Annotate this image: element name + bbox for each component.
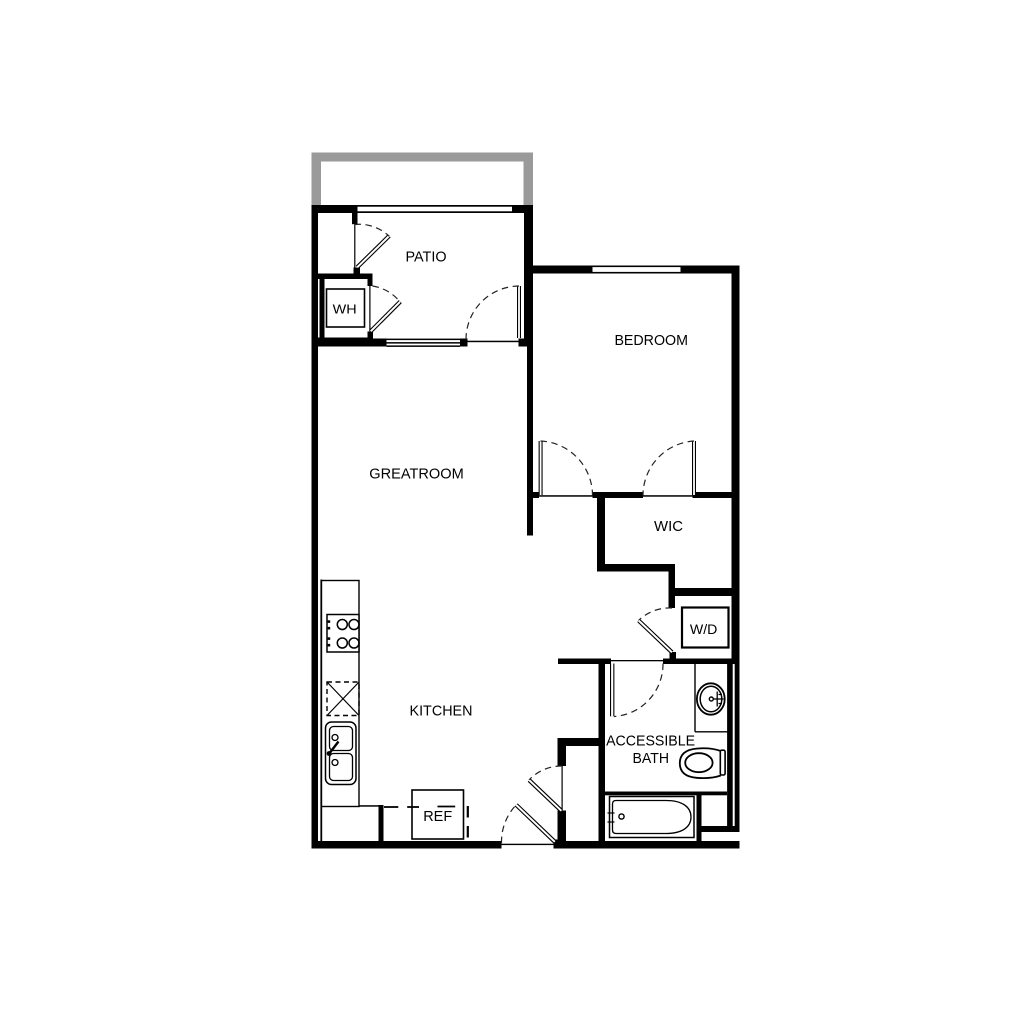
svg-text:KITCHEN: KITCHEN (410, 703, 473, 720)
svg-text:ACCESSIBLE: ACCESSIBLE (606, 733, 695, 750)
svg-text:WIC: WIC (654, 518, 683, 535)
svg-text:BEDROOM: BEDROOM (614, 332, 688, 349)
svg-text:GREATROOM: GREATROOM (369, 466, 464, 483)
svg-text:W/D: W/D (690, 621, 718, 637)
svg-text:BATH: BATH (633, 750, 670, 767)
svg-text:PATIO: PATIO (406, 249, 447, 266)
svg-text:REF: REF (423, 808, 452, 825)
svg-text:WH: WH (333, 301, 357, 316)
